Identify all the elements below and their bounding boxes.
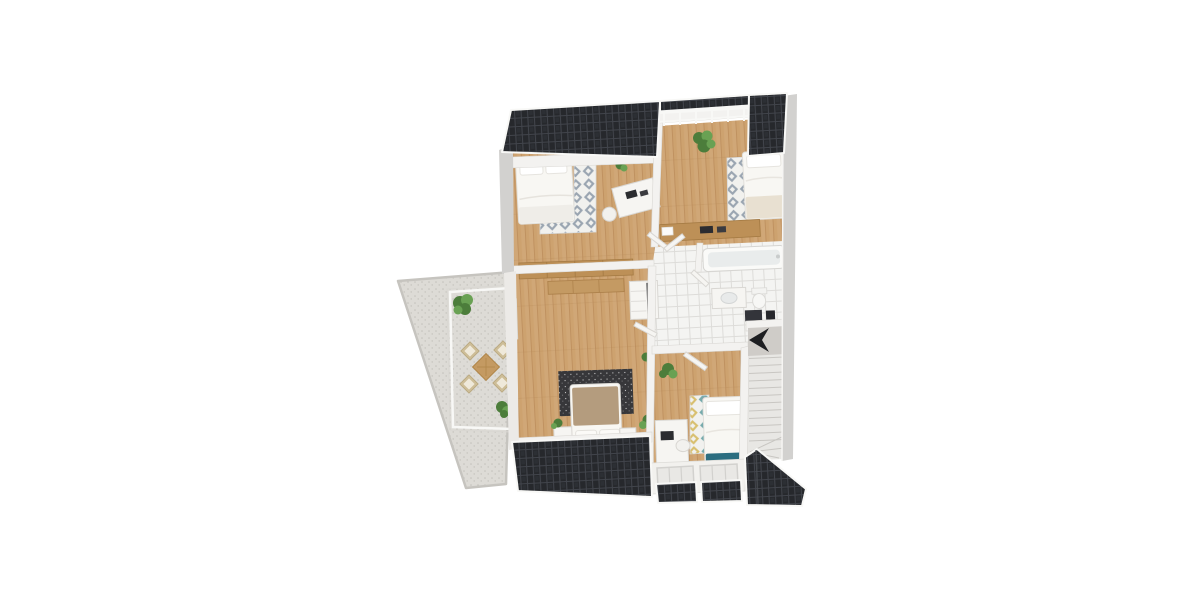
office-chair (676, 439, 690, 451)
sideboard-item-dark (717, 226, 726, 232)
bathtub (703, 245, 786, 272)
roof-dormer-right-flap (701, 480, 742, 502)
pillow (706, 400, 742, 415)
master-wardrobe (548, 279, 624, 295)
tub-basin (708, 249, 781, 267)
roof-dormer-left-flap (656, 482, 697, 503)
roof-top-right (748, 93, 787, 156)
sideboard-item (662, 227, 673, 236)
wall-left-outer (499, 145, 514, 274)
cream-blanket (746, 195, 787, 219)
floorplan-svg (0, 0, 1200, 600)
washbasin-vanity (712, 287, 747, 308)
foot-blanket (519, 205, 574, 224)
laptop (661, 431, 674, 440)
bed-top-right (742, 150, 788, 220)
floorplan-canvas (0, 0, 1200, 600)
sink-bowl (721, 292, 737, 304)
tan-duvet (572, 386, 619, 426)
roof-top-left (502, 101, 660, 157)
toilet-bowl (752, 293, 766, 308)
roof-bottom-left (512, 436, 652, 497)
sideboard-item-dark (700, 226, 713, 234)
terrace (398, 272, 512, 488)
